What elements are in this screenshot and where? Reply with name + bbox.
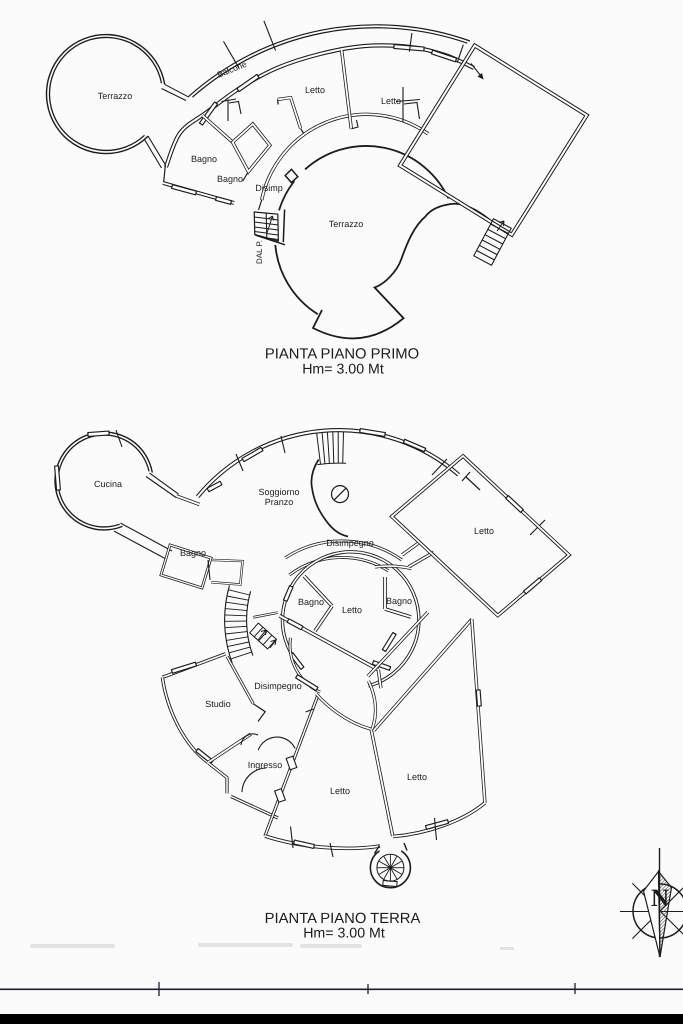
svg-text:Disimp: Disimp — [255, 183, 283, 193]
svg-text:Letto: Letto — [474, 526, 494, 536]
svg-text:Bagno: Bagno — [386, 596, 412, 606]
svg-text:Terrazzo: Terrazzo — [98, 91, 133, 101]
svg-text:Letto: Letto — [305, 85, 325, 95]
svg-text:DAL P.: DAL P. — [255, 240, 264, 264]
svg-text:Bagno: Bagno — [217, 174, 243, 184]
svg-text:Pranzo: Pranzo — [265, 497, 294, 507]
svg-text:Bagno: Bagno — [298, 597, 324, 607]
svg-text:Bagno: Bagno — [191, 154, 217, 164]
svg-text:Letto: Letto — [342, 605, 362, 615]
svg-text:Bagno: Bagno — [180, 548, 206, 558]
svg-text:Hm= 3.00 Mt: Hm= 3.00 Mt — [302, 362, 384, 378]
svg-text:Hm= 3.00 Mt: Hm= 3.00 Mt — [303, 926, 385, 942]
svg-text:Disimpegno: Disimpegno — [254, 681, 302, 691]
svg-text:Letto: Letto — [381, 96, 401, 106]
svg-text:Terrazzo: Terrazzo — [329, 219, 364, 229]
svg-text:Soggiorno: Soggiorno — [258, 487, 299, 497]
svg-text:Letto: Letto — [330, 786, 350, 796]
svg-text:Cucina: Cucina — [94, 479, 122, 489]
svg-text:PIANTA PIANO PRIMO: PIANTA PIANO PRIMO — [265, 347, 419, 363]
svg-text:Letto: Letto — [407, 772, 427, 782]
svg-text:Disimpegno: Disimpegno — [326, 538, 374, 548]
svg-text:N: N — [651, 885, 669, 912]
svg-text:Studio: Studio — [205, 699, 231, 709]
svg-text:Ingresso: Ingresso — [248, 760, 283, 770]
